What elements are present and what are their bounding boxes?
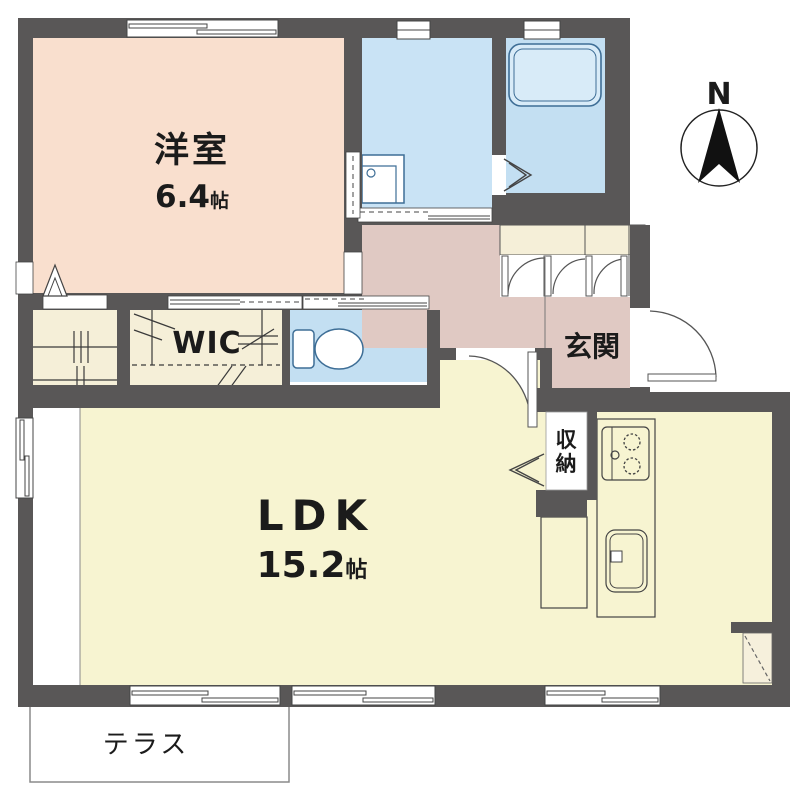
closet-left-opening <box>43 295 107 309</box>
bathroom-door-opening <box>492 155 506 195</box>
ldk-edge-strip <box>33 408 80 685</box>
vanity-icon <box>362 155 404 203</box>
wic-sliding-door <box>168 296 302 309</box>
window-bottom-right <box>545 686 660 705</box>
ldk-size-unit: 帖 <box>345 558 367 583</box>
pipe-space <box>743 633 772 683</box>
left-wall-gap <box>16 262 33 294</box>
entrance-label: 玄関 <box>564 330 620 363</box>
western-size-unit: 帖 <box>210 189 229 212</box>
western-room-label: 洋室 <box>154 130 230 171</box>
entrance-closet <box>500 225 645 297</box>
terrace-label: テラス <box>103 730 189 760</box>
window-western-top <box>127 20 278 37</box>
window-bathroom-top <box>524 21 560 39</box>
entry-door-opening <box>630 308 650 387</box>
ldk-size-value: 15.2 <box>257 545 346 586</box>
storage-label-bottom: 納 <box>556 452 577 476</box>
ldk-door-jamb <box>456 350 469 360</box>
window-washroom-top <box>397 21 430 39</box>
window-bottom-middle <box>292 686 435 705</box>
room-ldk <box>80 408 772 685</box>
storage-label-top: 収 <box>556 428 578 452</box>
floor-plan: N 洋室 6.4帖 LDK 15.2帖 WIC 玄関 収 納 テラス <box>0 0 800 800</box>
bathtub-icon <box>509 44 601 106</box>
western-size-value: 6.4 <box>155 179 210 215</box>
window-bottom-left <box>130 686 280 705</box>
entry-door <box>648 311 716 381</box>
compass-n-label: N <box>706 77 731 112</box>
toilet-icon <box>293 329 363 369</box>
window-left-wall <box>16 418 33 498</box>
washroom-sliding-door <box>358 208 492 222</box>
compass: N <box>681 77 757 186</box>
ldk-label: LDK <box>257 491 375 540</box>
room-fills <box>33 38 772 685</box>
toilet-sliding-door <box>303 296 429 309</box>
wic-label: WIC <box>172 326 241 361</box>
